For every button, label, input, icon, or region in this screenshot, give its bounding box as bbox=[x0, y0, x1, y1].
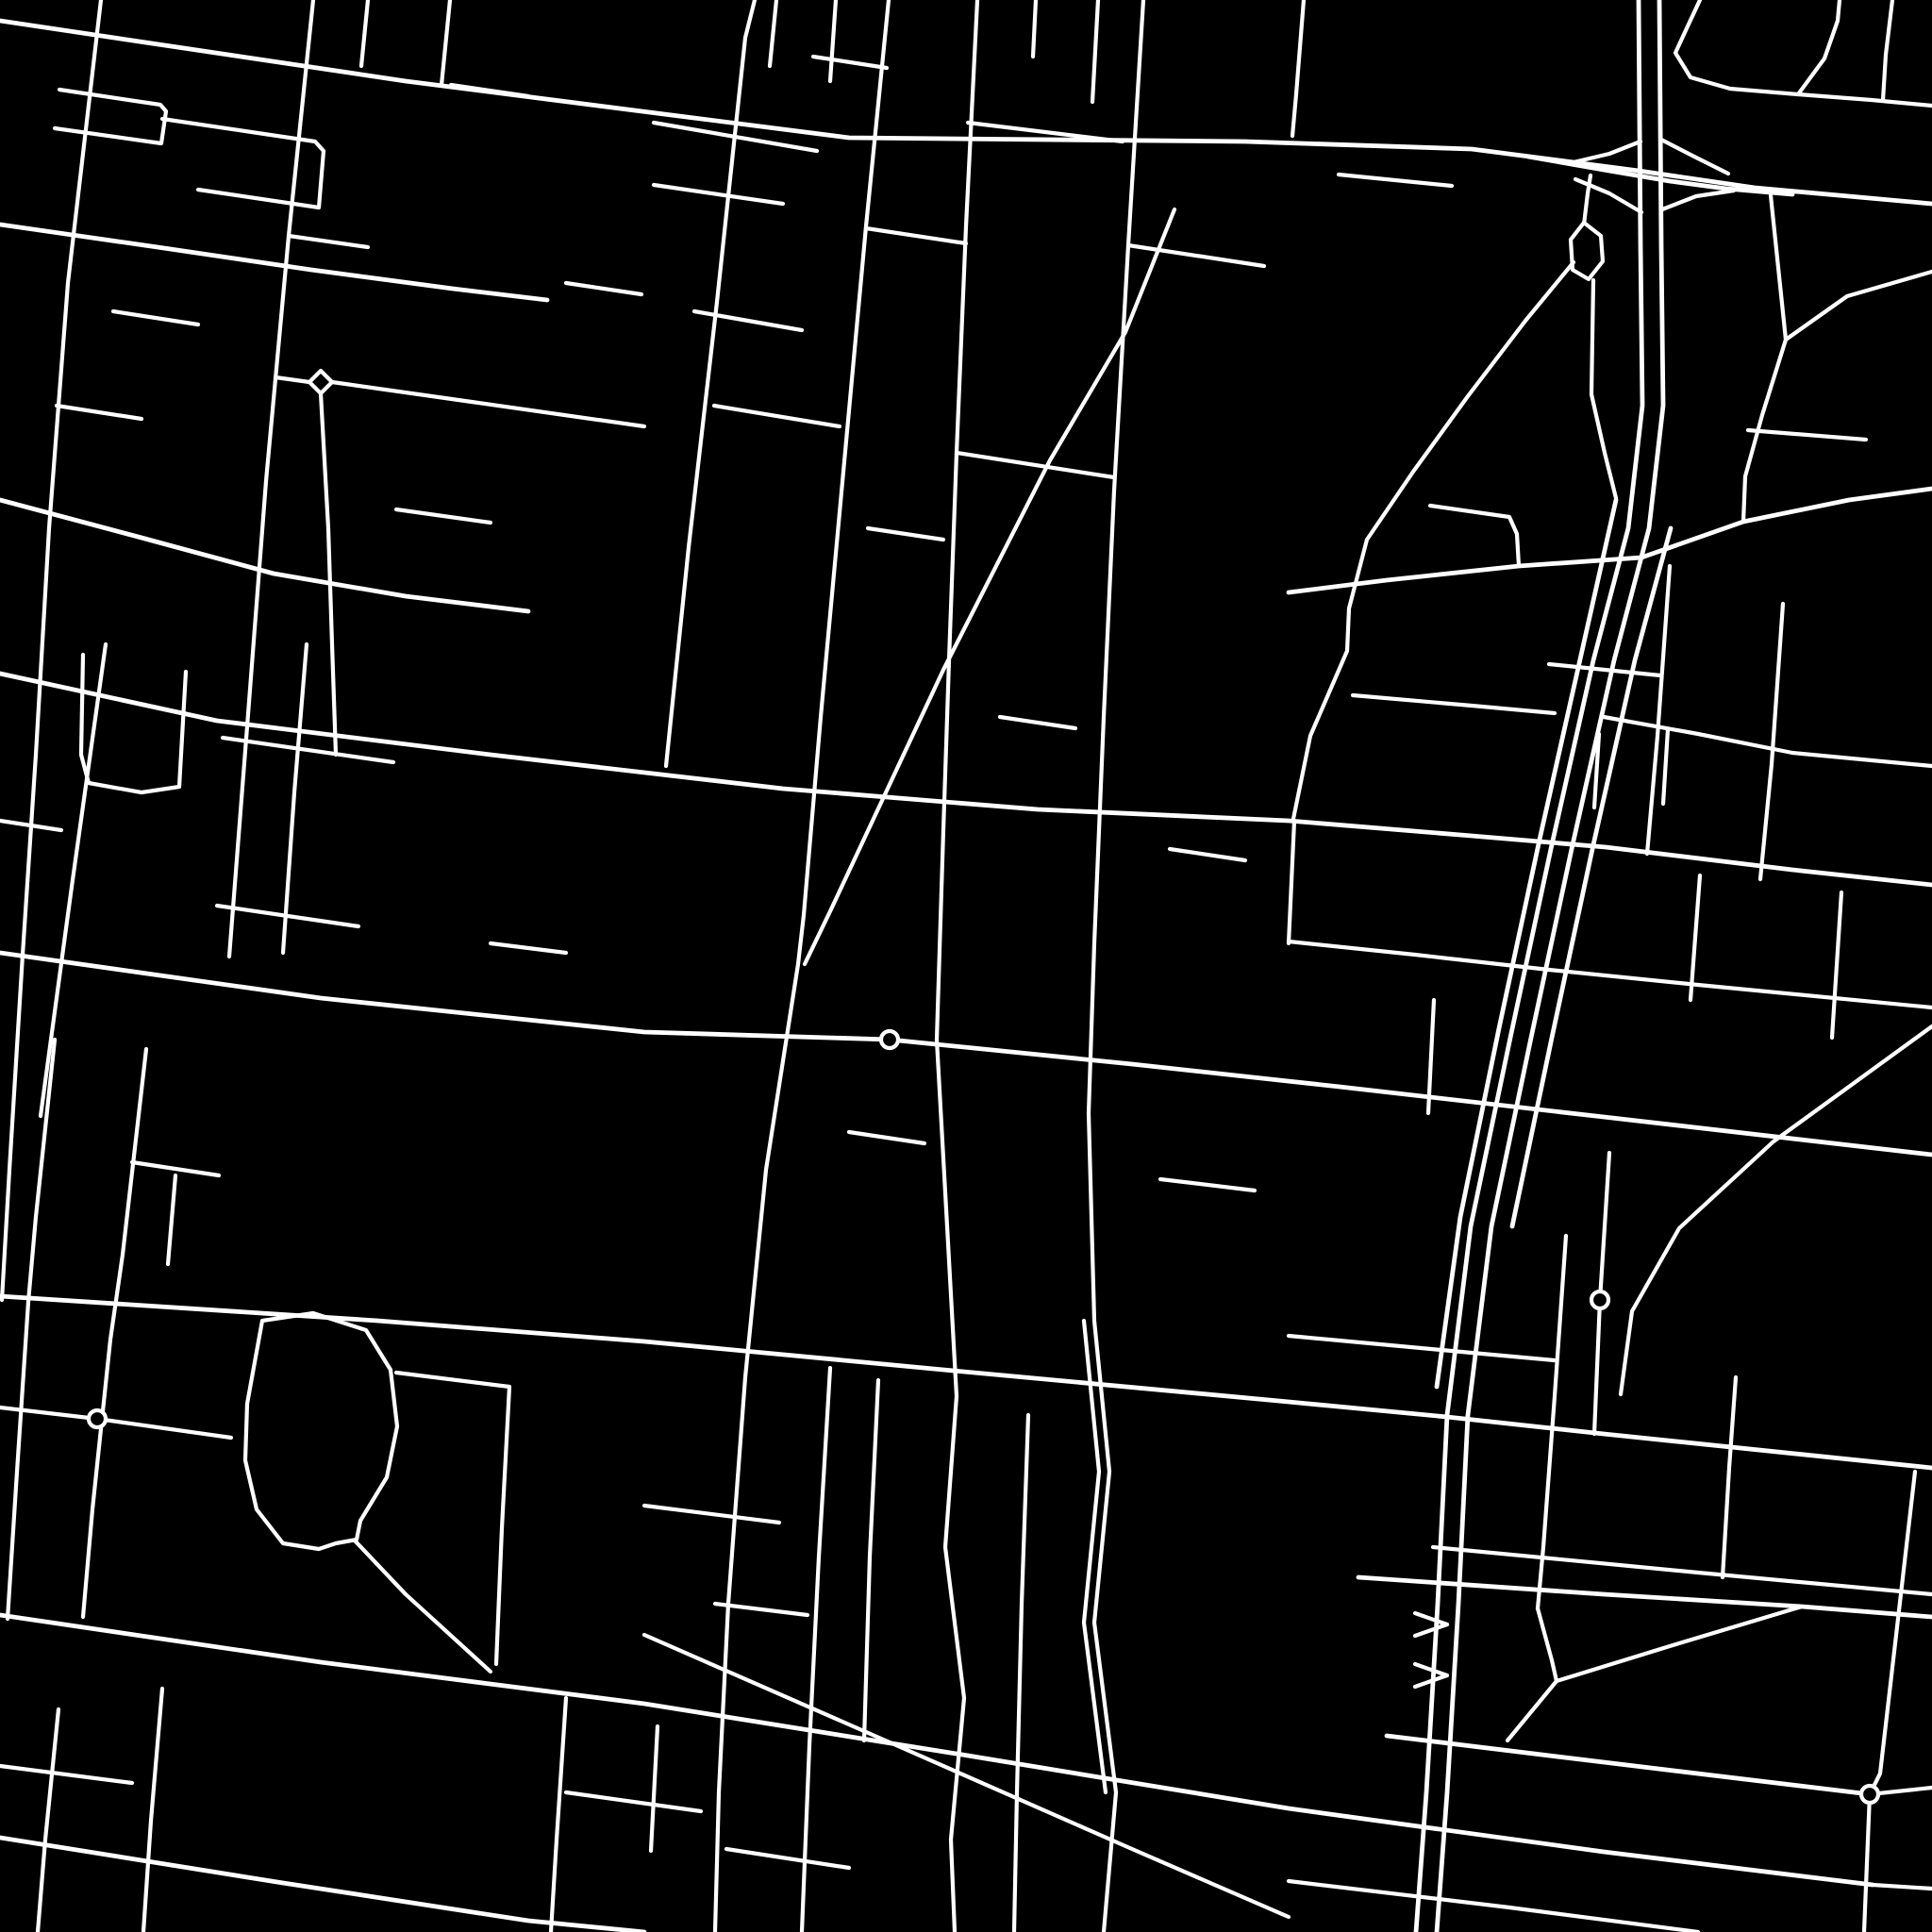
junction-node bbox=[1591, 1291, 1608, 1308]
junction-node bbox=[89, 1410, 106, 1427]
junction-node bbox=[881, 1031, 898, 1048]
road-map[interactable] bbox=[0, 0, 1932, 1932]
road-network-canvas[interactable] bbox=[0, 0, 1932, 1932]
street-road bbox=[1033, 0, 1036, 57]
junction-node bbox=[1861, 1786, 1878, 1803]
